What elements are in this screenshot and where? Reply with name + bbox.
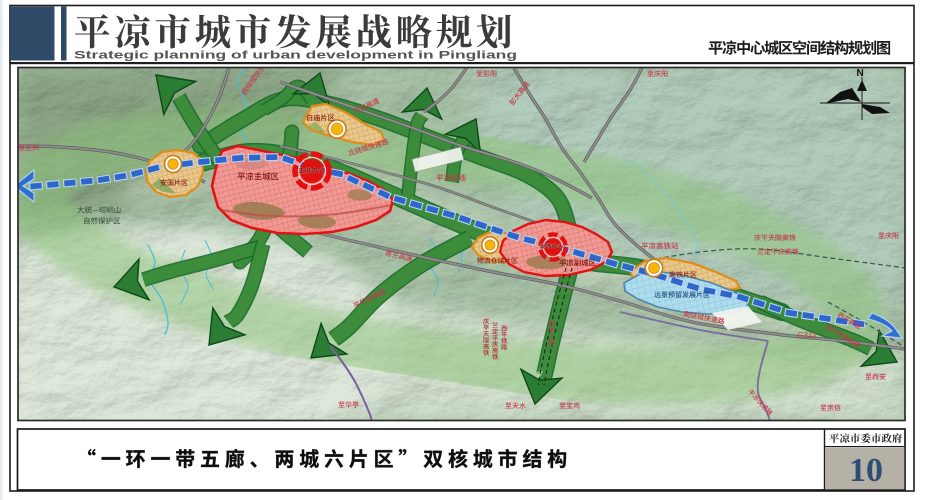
svg-text:G312: G312 xyxy=(797,331,817,340)
svg-text:N: N xyxy=(857,68,864,79)
svg-text:10: 10 xyxy=(849,452,883,489)
svg-text:Strategic planning of urban de: Strategic planning of urban development … xyxy=(74,50,517,62)
